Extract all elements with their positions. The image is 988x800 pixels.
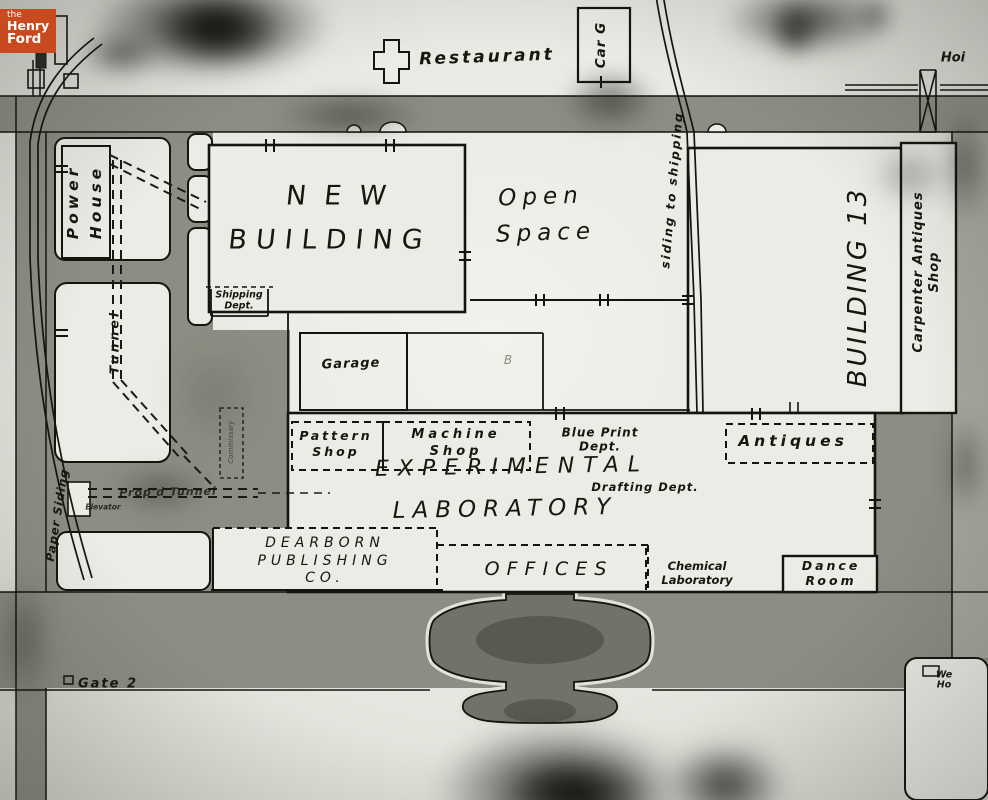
map-linework [0,0,988,800]
site-plan-map: Restaurant Car G Hoi siding to shipping … [0,0,988,800]
new-building-label-line2: BUILDING [227,225,433,256]
open-space-label-line2: Space [496,218,597,247]
shipping-dept-label: Shipping Dept. [215,290,262,313]
elevator-label: Elevator [85,503,120,512]
chemical-laboratory-label: Chemical Laboratory [661,560,732,588]
plaza-shading-lower [504,699,576,723]
garage-label: Garage [321,355,380,372]
plaza-shading [476,616,604,664]
car-garage-label: Car G [593,22,609,68]
drafting-dept-label: Drafting Dept. [591,480,698,494]
laboratory-label: LABORATORY [392,494,617,524]
henry-ford-logo: the Henry Ford [0,9,56,53]
lower-west-block [57,532,210,590]
garage-outline [300,333,407,410]
antiques-label: Antiques [738,432,848,450]
logo-ford: Ford [7,33,56,47]
weigh-house-label: We Ho [936,671,952,692]
new-building-label-line1: NEW [284,181,405,212]
commissary-label: Commissary [227,420,235,463]
restaurant-building [374,40,409,83]
carpenter-shop-label: Carpenter Antiques Shop [911,191,944,352]
building-13-label: BUILDING 13 [843,187,873,388]
tunnel-label: Tunnel [107,310,122,374]
proposed-tunnel-label: Prop'd Tunnel [119,485,217,500]
hoist-label: Hoi [941,51,965,66]
blue-print-dept-label: Blue Print Dept. [562,426,639,455]
gate-2-label: Gate 2 [78,677,138,692]
dance-room-label: Dance Room [802,558,861,588]
power-house-label: Power House [62,165,109,240]
b-mark: B [504,353,512,367]
dearborn-publishing-label: DEARBORN PUBLISHING CO. [257,535,392,588]
pattern-shop-label: Pattern Shop [299,428,372,461]
experimental-label: EXPERIMENTAL [375,452,649,482]
offices-label: OFFICES [485,558,614,580]
open-space-label-line1: Open [498,183,584,212]
